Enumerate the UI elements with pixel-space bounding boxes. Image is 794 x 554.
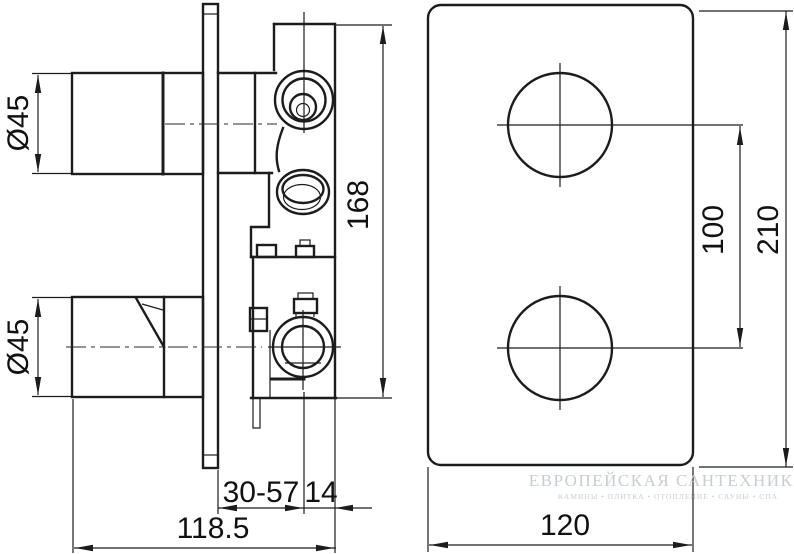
drawing-svg: Ø45 Ø45 168	[0, 0, 794, 554]
dim-label-14: 14	[304, 476, 337, 509]
dim-knob-diameter-bottom: Ø45	[2, 298, 72, 397]
top-handle-hole	[497, 63, 743, 187]
dim-plate-width: 120	[428, 467, 693, 552]
dim-label-168: 168	[342, 180, 375, 230]
dim-label-d45-bottom: Ø45	[2, 319, 35, 376]
dim-label-30-57: 30-57	[223, 476, 300, 509]
side-view: Ø45 Ø45 168	[2, 4, 392, 553]
lower-valve	[250, 240, 341, 390]
front-view: 100 210 120	[428, 5, 793, 552]
technical-drawing-canvas: Ø45 Ø45 168	[0, 0, 794, 554]
dim-label-210: 210	[752, 205, 785, 255]
dim-label-120: 120	[540, 509, 590, 542]
bottom-handle-hole	[497, 286, 743, 410]
dim-label-100: 100	[697, 205, 730, 255]
dim-knob-diameter-top: Ø45	[2, 74, 72, 174]
middle-port	[277, 170, 329, 214]
trim-plate-edge	[203, 4, 218, 468]
dim-label-118-5: 118.5	[177, 512, 250, 545]
dim-label-d45-top: Ø45	[2, 95, 35, 152]
side-centerlines	[66, 124, 277, 347]
dim-handle-spacing: 100	[697, 126, 743, 347]
top-port	[274, 12, 334, 133]
dim-body-height: 168	[334, 25, 392, 398]
